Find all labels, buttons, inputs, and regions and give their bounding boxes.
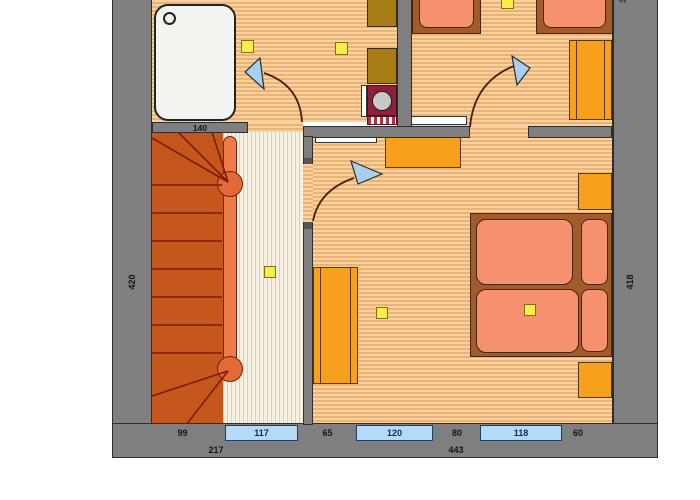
bedrooms-divider-wall-right: [528, 126, 612, 138]
ceiling-light-icon: [376, 307, 388, 319]
washbasin-side-panel: [361, 85, 367, 117]
nightstand-top: [578, 173, 612, 210]
corridor-divider-wall-bottom: [303, 222, 313, 425]
washbasin-bowl-icon: [372, 91, 392, 111]
stair-newel-top: [217, 171, 243, 197]
wardrobe-door-divider: [320, 268, 351, 383]
bathroom-door-opening-floor: [248, 122, 303, 132]
dimension-443: 443: [430, 445, 482, 455]
double-bed-pillow-top: [581, 219, 608, 285]
bathroom-cabinet-middle: [367, 48, 397, 84]
stair-newel-bottom: [217, 356, 243, 382]
dimension-box-118: 118: [480, 425, 562, 441]
staircase: [152, 132, 223, 425]
wardrobe-door-divider: [576, 41, 605, 119]
single-bed-2-mattress: [543, 0, 606, 28]
double-bed-mattress-bottom: [476, 289, 579, 353]
bedrooms-divider-wall-left: [303, 126, 470, 138]
shelf-top-bedroom: [410, 116, 467, 125]
floor-plan: 140 420 418 3 99 117 65 120 80 118 60 21…: [0, 0, 700, 500]
wardrobe-top-bedroom: [569, 40, 612, 120]
double-bed-pillow-bottom: [581, 289, 608, 352]
dimension-label-140: 140: [152, 123, 248, 133]
bathtub-drain-icon: [163, 12, 176, 25]
dimension-box-117: 117: [225, 425, 298, 441]
ceiling-light-icon: [241, 40, 254, 53]
corridor-door-opening-floor: [303, 164, 313, 222]
ceiling-light-icon: [264, 266, 276, 278]
dimension-label-420: 420: [127, 267, 137, 297]
dimension-label-partial: 3: [619, 0, 628, 11]
bathroom-bedroom-divider-wall: [397, 0, 412, 128]
washbasin-unit: [367, 85, 397, 116]
dimension-217: 217: [190, 445, 242, 455]
bedroom-door-opening-floor: [470, 126, 528, 138]
ceiling-light-icon: [524, 304, 536, 316]
dimension-99: 99: [160, 428, 205, 438]
double-bed-mattress-top: [476, 219, 573, 285]
ceiling-light-icon: [335, 42, 348, 55]
ceiling-light-icon: [501, 0, 514, 9]
dimension-box-120: 120: [356, 425, 433, 441]
sideboard: [385, 137, 461, 168]
nightstand-bottom: [578, 362, 612, 398]
right-wall: [612, 0, 658, 458]
single-bed-1-mattress: [419, 0, 474, 28]
door-jamb: [304, 158, 312, 164]
left-wall: [112, 0, 152, 458]
dimension-label-418: 418: [625, 267, 635, 297]
door-jamb: [304, 222, 312, 229]
wardrobe-main-bedroom: [313, 267, 358, 384]
bathroom-cabinet-top: [367, 0, 397, 27]
dimension-60: 60: [558, 428, 598, 438]
dimension-80: 80: [436, 428, 478, 438]
bathmat: [367, 116, 397, 125]
dimension-65: 65: [305, 428, 350, 438]
